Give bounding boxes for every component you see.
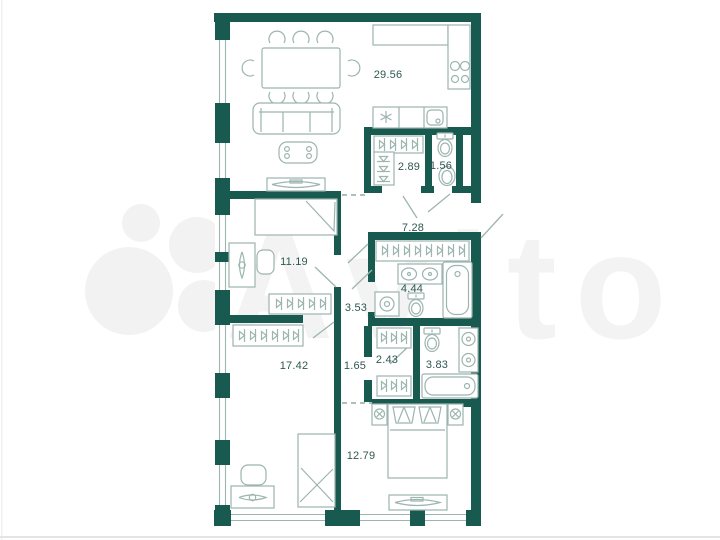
room-label-wardrobe-2: 2.43 [376,354,398,366]
room-label-bedroom-2: 17.42 [280,360,309,372]
room-label-bathroom-2: 3.83 [426,359,448,371]
room-label-bedroom-3: 12.79 [347,450,376,462]
bathtub-1 [443,262,472,318]
dresser [389,495,447,510]
dining-table [262,48,340,88]
coffee-table [279,142,317,163]
page-left-edge [1,0,3,540]
bed-single-1 [255,199,337,235]
floor-plan-svg: Avito [0,0,720,540]
toilet-icon [437,133,453,157]
room-label-living-kitchen: 29.56 [374,69,403,81]
bed-single-2 [298,434,335,507]
room-label-bathroom-1: 4.44 [401,283,423,295]
room-label-bedroom-1: 11.19 [280,256,308,268]
bathtub-2 [422,374,478,398]
toilet-icon [424,328,440,352]
double-sink [398,264,442,284]
wardrobe-bedroom1 [269,294,331,314]
bed-double [388,404,447,478]
page-bottom-edge [0,536,720,538]
nightstand-left [372,404,387,425]
round-sinks [459,328,478,372]
nightstand-right [448,404,463,425]
toilet-icon [408,293,424,317]
room-label-corridor: 3.53 [345,302,367,314]
watermark-logo [85,204,230,335]
desk-2 [231,465,274,508]
tv-console-living [267,178,325,191]
room-label-hall-2: 1.65 [344,360,366,372]
sofa [253,103,340,134]
bathroom1-rack [376,241,469,261]
room-label-hallway: 7.28 [402,222,424,234]
floor-plan-image: Avito [0,0,720,540]
room-label-wc: 1.56 [430,160,452,172]
wardrobe-bedroom2 [233,325,303,346]
washing-machine [375,292,399,316]
room-label-wardrobe-hall: 2.89 [398,161,420,173]
